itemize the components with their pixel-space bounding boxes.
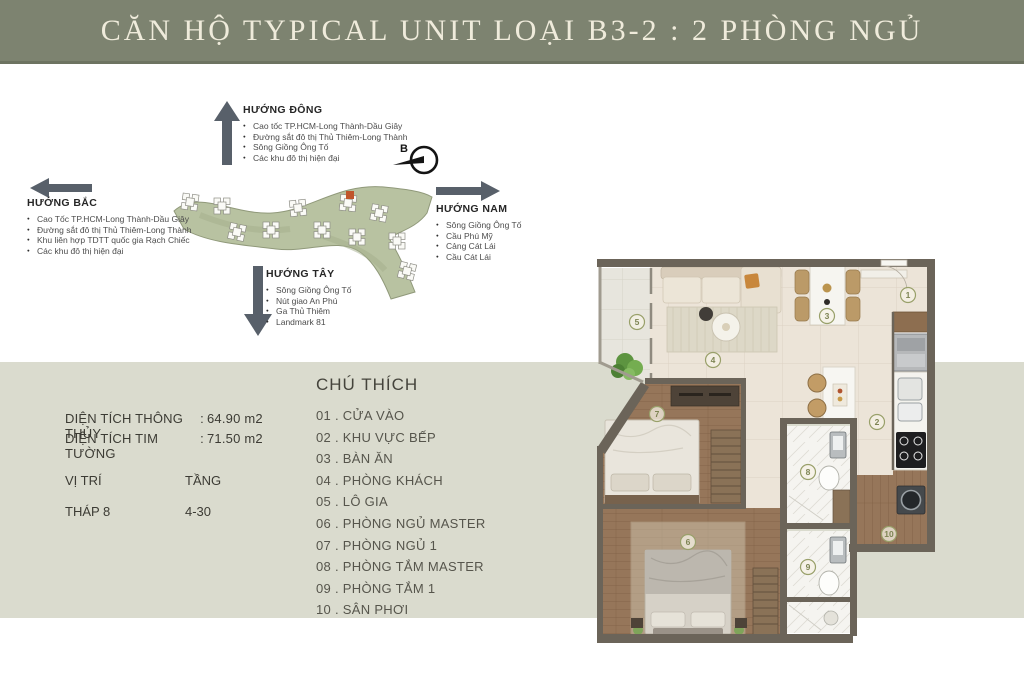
brochure-page: CĂN HỘ TYPICAL UNIT LOẠI B3-2 : 2 PHÒNG … bbox=[0, 0, 1024, 683]
svg-text:8: 8 bbox=[806, 467, 811, 477]
list-item: Cầu Phú Mỹ bbox=[436, 231, 521, 242]
arrow-left-icon bbox=[30, 178, 92, 198]
svg-text:3: 3 bbox=[825, 311, 830, 321]
direction-list: Sông Giồng Ông TốNút giao An PhúGa Thủ T… bbox=[266, 285, 351, 327]
floor-plan-image: 1 2 3 4 5 6 7 8 9 10 bbox=[593, 250, 943, 650]
list-item: Cầu Cát Lái bbox=[436, 252, 521, 263]
list-item: 09 . PHÒNG TẮM 1 bbox=[316, 578, 486, 600]
direction-block-north: HƯỚNG BẮC Cao Tốc TP.HCM-Long Thành-Dầu … bbox=[27, 197, 191, 256]
location-info: VỊ TRÍ TẦNG THÁP 8 4-30 bbox=[65, 473, 221, 519]
legend-title: CHÚ THÍCH bbox=[316, 375, 486, 395]
svg-text:7: 7 bbox=[655, 409, 660, 419]
svg-text:5: 5 bbox=[635, 317, 640, 327]
floor-label: TẦNG bbox=[185, 473, 221, 488]
list-item: 08 . PHÒNG TẮM MASTER bbox=[316, 556, 486, 578]
svg-text:10: 10 bbox=[884, 529, 894, 539]
arrow-right-icon bbox=[436, 181, 500, 201]
info-row: DIỆN TÍCH THÔNG THỦY : 64.90 m2 bbox=[65, 411, 263, 431]
list-item: Các khu đô thị hiện đại bbox=[27, 246, 191, 257]
marker-5: 5 bbox=[630, 315, 645, 330]
info-label: DIỆN TÍCH TIM TƯỜNG bbox=[65, 431, 197, 461]
list-item: Sông Giồng Ông Tố bbox=[266, 285, 351, 296]
list-item: Sông Giồng Ông Tố bbox=[243, 142, 407, 153]
marker-9: 9 bbox=[801, 560, 816, 575]
direction-block-east: HƯỚNG ĐÔNG Cao tốc TP.HCM-Long Thành-Dầu… bbox=[243, 104, 407, 163]
list-item: 02 . KHU VỰC BẾP bbox=[316, 427, 486, 449]
list-item: Các khu đô thị hiện đại bbox=[243, 153, 407, 164]
title-banner: CĂN HỘ TYPICAL UNIT LOẠI B3-2 : 2 PHÒNG … bbox=[0, 0, 1024, 64]
list-item: Sông Giồng Ông Tố bbox=[436, 220, 521, 231]
svg-text:6: 6 bbox=[686, 537, 691, 547]
marker-6: 6 bbox=[681, 535, 696, 550]
svg-text:4: 4 bbox=[711, 355, 716, 365]
floor-value: 4-30 bbox=[185, 504, 221, 519]
marker-2: 2 bbox=[870, 415, 885, 430]
highlighted-tower bbox=[346, 191, 354, 199]
list-item: Cao tốc TP.HCM-Long Thành-Dầu Giây bbox=[243, 121, 407, 132]
list-item: Ga Thủ Thiêm bbox=[266, 306, 351, 317]
svg-text:9: 9 bbox=[806, 562, 811, 572]
svg-text:2: 2 bbox=[875, 417, 880, 427]
marker-7: 7 bbox=[650, 407, 665, 422]
direction-list: Sông Giồng Ông TốCầu Phú MỹCảng Cát LáiC… bbox=[436, 220, 521, 262]
direction-block-south: HƯỚNG NAM Sông Giồng Ông TốCầu Phú MỹCản… bbox=[436, 203, 521, 262]
list-item: 01 . CỬA VÀO bbox=[316, 405, 486, 427]
info-row: DIỆN TÍCH TIM TƯỜNG : 71.50 m2 bbox=[65, 431, 263, 451]
bedroom1-furniture bbox=[605, 386, 741, 504]
legend: CHÚ THÍCH 01 . CỬA VÀO02 . KHU VỰC BẾP03… bbox=[316, 375, 486, 621]
list-item: Cao Tốc TP.HCM-Long Thành-Dầu Giây bbox=[27, 214, 191, 225]
list-item: 04 . PHÒNG KHÁCH bbox=[316, 470, 486, 492]
list-item: Nút giao An Phú bbox=[266, 296, 351, 307]
kitchen-counter bbox=[893, 312, 929, 470]
direction-title: HƯỚNG TÂY bbox=[266, 268, 351, 280]
list-item: Cảng Cát Lái bbox=[436, 241, 521, 252]
direction-title: HƯỚNG BẮC bbox=[27, 197, 191, 209]
list-item: Khu liên hợp TDTT quốc gia Rạch Chiếc bbox=[27, 235, 191, 246]
position-label: VỊ TRÍ bbox=[65, 473, 185, 488]
direction-list: Cao Tốc TP.HCM-Long Thành-Dầu GiâyĐường … bbox=[27, 214, 191, 256]
list-item: Đường sắt đô thị Thủ Thiêm-Long Thành bbox=[243, 132, 407, 143]
marker-1: 1 bbox=[901, 288, 916, 303]
direction-block-west: HƯỚNG TÂY Sông Giồng Ông TốNút giao An P… bbox=[266, 268, 351, 327]
unit-info: DIỆN TÍCH THÔNG THỦY : 64.90 m2 DIỆN TÍC… bbox=[65, 411, 263, 451]
list-item: 07 . PHÒNG NGỦ 1 bbox=[316, 535, 486, 557]
direction-title: HƯỚNG ĐÔNG bbox=[243, 104, 407, 116]
list-item: Đường sắt đô thị Thủ Thiêm-Long Thành bbox=[27, 225, 191, 236]
direction-title: HƯỚNG NAM bbox=[436, 203, 521, 215]
direction-list: Cao tốc TP.HCM-Long Thành-Dầu GiâyĐường … bbox=[243, 121, 407, 163]
marker-3: 3 bbox=[820, 309, 835, 324]
marker-10: 10 bbox=[882, 527, 897, 542]
list-item: 06 . PHÒNG NGỦ MASTER bbox=[316, 513, 486, 535]
legend-list: 01 . CỬA VÀO02 . KHU VỰC BẾP03 . BÀN ĂN0… bbox=[316, 405, 486, 621]
list-item: 05 . LÔ GIA bbox=[316, 491, 486, 513]
list-item: 10 . SÂN PHƠI bbox=[316, 599, 486, 621]
info-value: 64.90 m2 bbox=[207, 411, 263, 426]
hallway-region bbox=[746, 422, 781, 510]
marker-8: 8 bbox=[801, 465, 816, 480]
list-item: 03 . BÀN ĂN bbox=[316, 448, 486, 470]
list-item: Landmark 81 bbox=[266, 317, 351, 328]
info-value: 71.50 m2 bbox=[207, 431, 263, 446]
washing-machine bbox=[897, 486, 925, 514]
page-title: CĂN HỘ TYPICAL UNIT LOẠI B3-2 : 2 PHÒNG … bbox=[101, 14, 924, 48]
position-value: THÁP 8 bbox=[65, 504, 185, 519]
arrow-up-icon bbox=[214, 101, 240, 165]
marker-4: 4 bbox=[706, 353, 721, 368]
svg-text:1: 1 bbox=[906, 290, 911, 300]
